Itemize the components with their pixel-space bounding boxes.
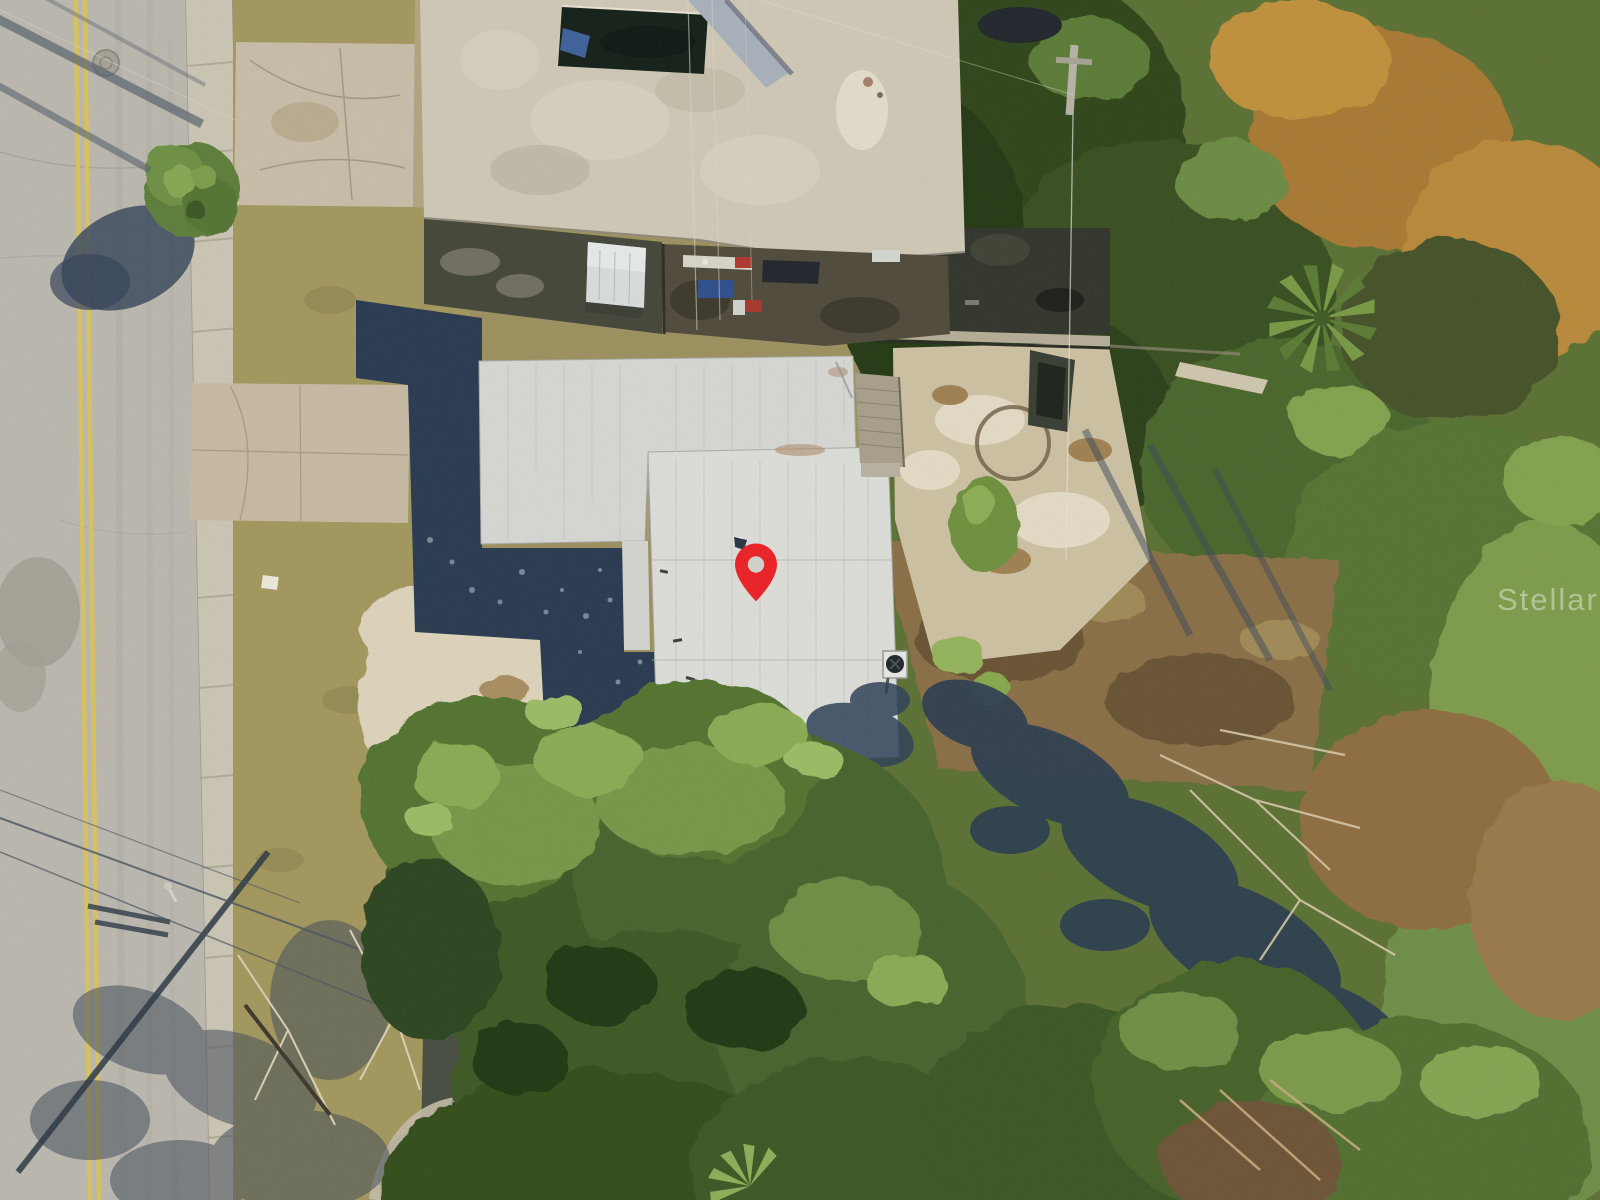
- stellar-mls-watermark: Stellar MLS: [1497, 582, 1600, 617]
- listing-aerial-photo: Stellar MLS: [0, 0, 1600, 1200]
- aerial-photo-canvas: Stellar MLS: [0, 0, 1600, 1200]
- photo-grain: [0, 0, 1600, 1200]
- pin-hole: [748, 556, 764, 572]
